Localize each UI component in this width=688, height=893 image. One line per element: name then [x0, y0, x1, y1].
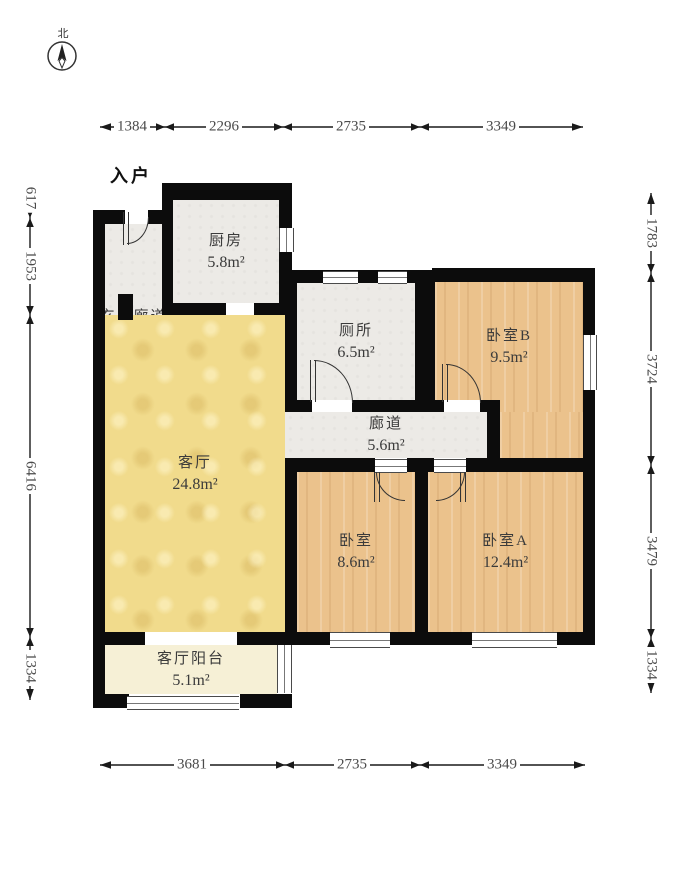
dim-label: 2735	[333, 119, 369, 136]
wall	[285, 283, 297, 412]
wall	[93, 694, 129, 708]
dim-label: 3349	[483, 119, 519, 136]
wall	[285, 458, 297, 632]
room-area: 12.4m²	[483, 552, 528, 573]
wall	[407, 458, 434, 472]
room-kitchen: 厨房 5.8m²	[173, 200, 279, 303]
dim-label: 1783	[643, 215, 660, 251]
room-bedroom-b-extension	[500, 412, 583, 458]
room-area: 8.6m²	[337, 552, 374, 573]
window	[127, 696, 239, 710]
room-label: 卧室A	[482, 531, 529, 552]
room-label: 厨房	[209, 231, 243, 252]
wall	[415, 472, 428, 632]
room-balcony: 客厅阳台 5.1m²	[105, 645, 277, 694]
room-area: 5.8m²	[207, 252, 244, 273]
window	[583, 335, 597, 390]
wall	[93, 210, 105, 708]
wall	[162, 200, 173, 315]
dim-label: 3349	[484, 757, 520, 774]
wall	[162, 183, 292, 200]
wall	[285, 400, 312, 412]
room-area: 5.1m²	[172, 670, 209, 691]
wall	[279, 183, 292, 228]
room-label: 客厅阳台	[157, 649, 225, 670]
dim-label: 6416	[22, 458, 39, 494]
window	[279, 228, 294, 252]
wall	[466, 458, 595, 472]
wall	[237, 632, 297, 645]
room-area: 5.6m²	[367, 435, 404, 456]
dim-label: 1953	[22, 248, 39, 284]
room-area: 6.5m²	[337, 342, 374, 363]
wall	[118, 294, 133, 320]
window	[330, 632, 390, 648]
dim-label: 617	[22, 184, 39, 213]
room-area: 24.8m²	[172, 474, 217, 495]
window	[378, 271, 407, 284]
wall	[390, 632, 472, 645]
dim-label: 3479	[643, 533, 660, 569]
door-threshold	[434, 459, 466, 473]
dim-label: 2735	[334, 757, 370, 774]
wall	[480, 400, 500, 412]
wall	[415, 270, 435, 412]
room-living: 客厅 24.8m²	[105, 315, 285, 632]
wall	[288, 270, 432, 283]
wall	[432, 268, 583, 282]
room-label: 客厅	[178, 453, 212, 474]
window	[277, 645, 292, 693]
room-label: 厕所	[339, 321, 373, 342]
dim-label: 2296	[206, 119, 242, 136]
floorplan-canvas: 北 入户 玄关廊道 2.8m² 厨房 5.8m² 厕所 6.5m² 廊道 5.6…	[0, 0, 688, 893]
dim-label: 3724	[643, 351, 660, 387]
room-label: 卧室B	[486, 326, 532, 347]
room-corridor: 廊道 5.6m²	[285, 412, 487, 458]
room-label: 卧室	[339, 531, 373, 552]
wall	[105, 632, 145, 645]
dim-label: 1334	[643, 647, 660, 683]
wall	[162, 303, 226, 315]
compass-icon	[48, 42, 76, 70]
dim-label: 1334	[22, 650, 39, 686]
wall	[240, 694, 292, 708]
window	[472, 632, 557, 648]
window	[323, 271, 358, 284]
room-label: 廊道	[369, 414, 403, 435]
wall	[487, 412, 500, 458]
wall	[352, 400, 415, 412]
room-area: 9.5m²	[490, 347, 527, 368]
door-threshold	[375, 459, 407, 473]
wall	[285, 458, 375, 472]
compass-north-label: 北	[50, 25, 76, 41]
dim-label: 3681	[174, 757, 210, 774]
dim-label: 1384	[114, 119, 150, 136]
wall	[557, 632, 595, 645]
entrance-label: 入户	[110, 162, 152, 188]
wall	[583, 268, 595, 645]
